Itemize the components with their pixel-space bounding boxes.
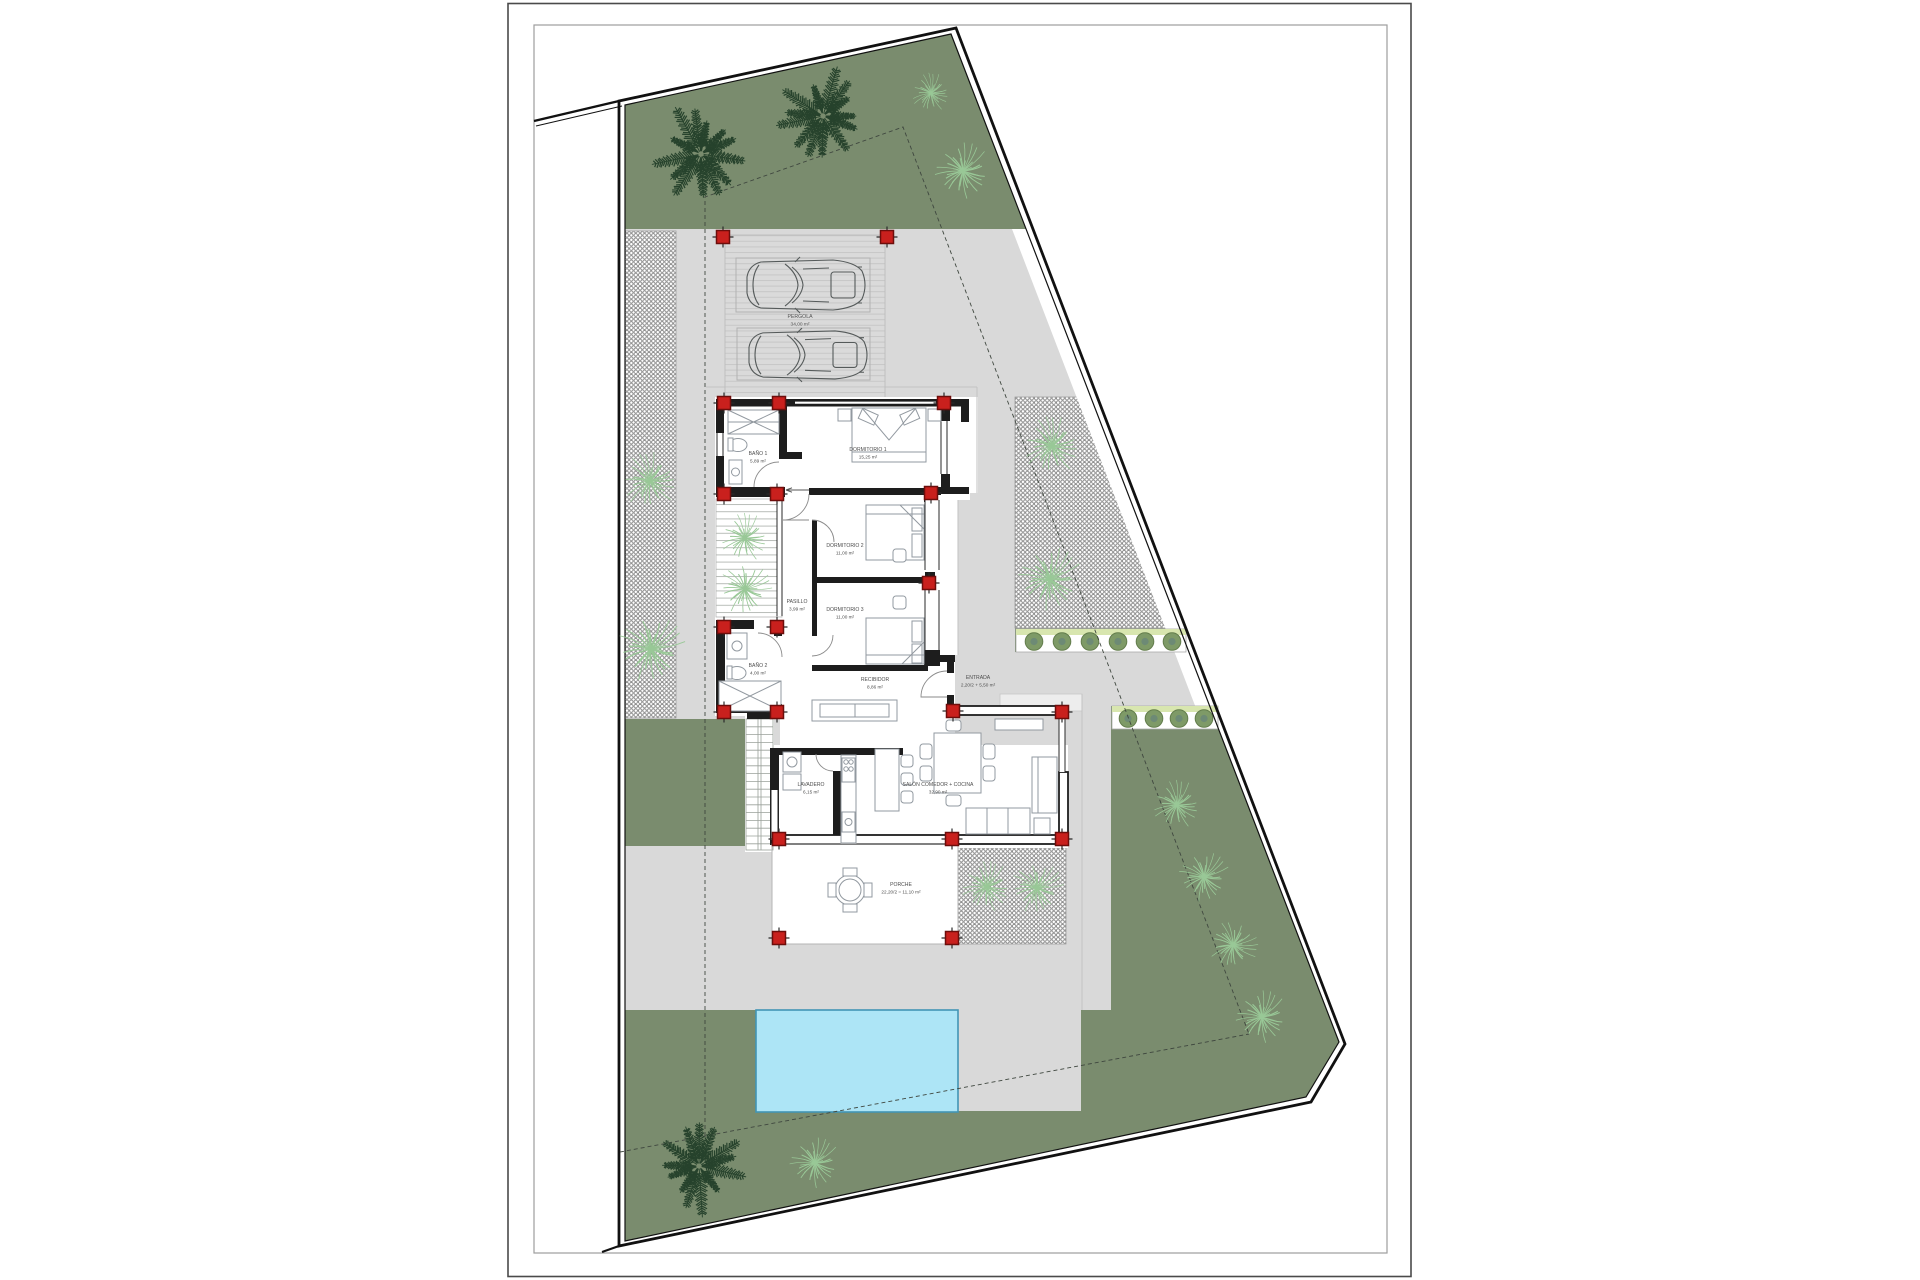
svg-text:DORMITORIO 2: DORMITORIO 2 bbox=[826, 543, 863, 549]
svg-text:8,86 m²: 8,86 m² bbox=[867, 685, 883, 690]
svg-text:6,15 m²: 6,15 m² bbox=[803, 790, 819, 795]
svg-text:4,00 m²: 4,00 m² bbox=[750, 671, 766, 676]
svg-text:11,00 m²: 11,00 m² bbox=[836, 615, 855, 620]
svg-text:BAÑO 1: BAÑO 1 bbox=[749, 450, 768, 457]
svg-text:32,90 m²: 32,90 m² bbox=[929, 790, 948, 795]
svg-text:DORMITORIO 1: DORMITORIO 1 bbox=[849, 447, 886, 453]
svg-text:LAVADERO: LAVADERO bbox=[798, 782, 825, 788]
svg-text:SALÓN COMEDOR + COCINA: SALÓN COMEDOR + COCINA bbox=[903, 781, 975, 788]
svg-text:2,20/2 + 5,50 m²: 2,20/2 + 5,50 m² bbox=[961, 683, 996, 688]
svg-text:RECIBIDOR: RECIBIDOR bbox=[861, 677, 890, 683]
svg-text:22,20/2 = 11,10 m²: 22,20/2 = 11,10 m² bbox=[881, 890, 921, 895]
svg-text:15,25 m²: 15,25 m² bbox=[859, 455, 878, 460]
svg-text:5,89 m²: 5,89 m² bbox=[750, 459, 766, 464]
svg-text:DORMITORIO 3: DORMITORIO 3 bbox=[826, 607, 863, 613]
svg-text:3,99 m²: 3,99 m² bbox=[789, 607, 805, 612]
svg-text:PASILLO: PASILLO bbox=[787, 599, 808, 605]
svg-text:PERGOLA: PERGOLA bbox=[787, 314, 813, 320]
svg-text:PORCHE: PORCHE bbox=[890, 882, 912, 888]
svg-text:34,00 m²: 34,00 m² bbox=[791, 322, 810, 328]
svg-text:11,00 m²: 11,00 m² bbox=[836, 551, 855, 556]
svg-text:BAÑO 2: BAÑO 2 bbox=[749, 662, 768, 669]
svg-text:ENTRADA: ENTRADA bbox=[966, 675, 991, 681]
